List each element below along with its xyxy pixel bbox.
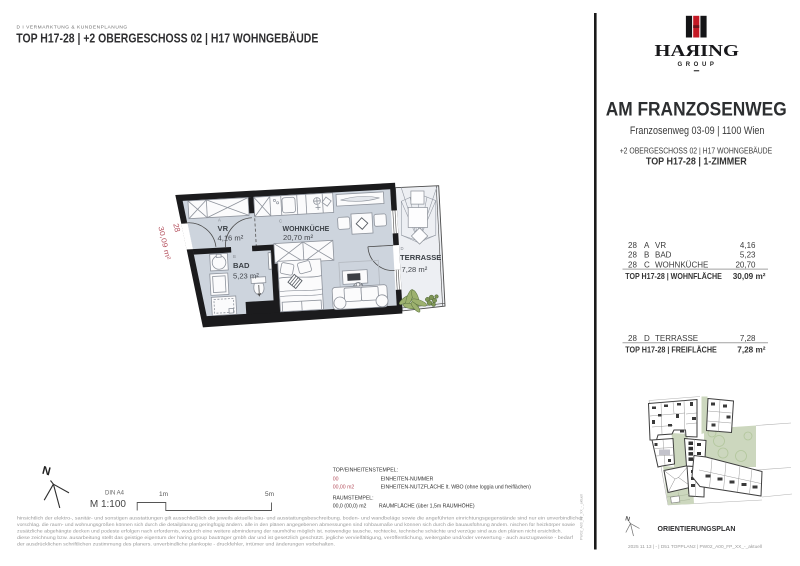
svg-text:28: 28 xyxy=(628,241,637,250)
svg-text:20,70: 20,70 xyxy=(735,260,756,269)
svg-text:M 1:100: M 1:100 xyxy=(90,499,127,510)
svg-text:RAUMFLÄCHE (über 1,5m RAUMHÖHE: RAUMFLÄCHE (über 1,5m RAUMHÖHE) xyxy=(379,503,475,510)
svg-text:TOP H17-28 | +2 OBERGESCHOSS 0: TOP H17-28 | +2 OBERGESCHOSS 02 | H17 WO… xyxy=(16,31,318,46)
svg-text:7,28 m²: 7,28 m² xyxy=(737,345,765,354)
svg-text:TOP H17-28 | WOHNFLÄCHE: TOP H17-28 | WOHNFLÄCHE xyxy=(625,271,722,281)
svg-text:1m: 1m xyxy=(159,491,168,498)
svg-text:BAD: BAD xyxy=(655,251,672,260)
svg-text:VR: VR xyxy=(218,224,229,233)
svg-text:RAUMSTEMPEL:: RAUMSTEMPEL: xyxy=(333,495,374,501)
svg-text:TERRASSE: TERRASSE xyxy=(655,334,698,343)
svg-text:TOP/EINHEITENSTEMPEL:: TOP/EINHEITENSTEMPEL: xyxy=(333,468,398,474)
svg-text:20,70 m²: 20,70 m² xyxy=(283,233,313,242)
svg-text:5,23: 5,23 xyxy=(740,251,756,260)
svg-text:TOP H17-28 | FREIFLÄCHE: TOP H17-28 | FREIFLÄCHE xyxy=(625,344,717,354)
svg-text:B: B xyxy=(233,254,236,259)
svg-text:GROUP: GROUP xyxy=(677,62,717,68)
svg-text:7,28 m²: 7,28 m² xyxy=(402,265,428,274)
svg-text:00: 00 xyxy=(333,477,339,483)
svg-text:+2 OBERGESCHOSS 02 | H17 WOHNG: +2 OBERGESCHOSS 02 | H17 WOHNGEBÄUDE xyxy=(620,147,773,156)
svg-text:der ausdrücklichen schriftlich: der ausdrücklichen schriftlichen zustimm… xyxy=(17,542,335,547)
svg-text:VR: VR xyxy=(655,241,666,250)
svg-text:4,16 m²: 4,16 m² xyxy=(218,233,244,242)
svg-text:5m: 5m xyxy=(265,491,274,498)
svg-text:30,09 m²: 30,09 m² xyxy=(733,272,766,281)
svg-text:7,28: 7,28 xyxy=(740,334,756,343)
svg-text:C: C xyxy=(644,260,650,269)
svg-text:PW02_A00_FP_XX_-_aktuell: PW02_A00_FP_XX_-_aktuell xyxy=(580,494,584,540)
svg-text:A: A xyxy=(218,217,221,222)
svg-text:BAD: BAD xyxy=(233,261,250,270)
svg-text:zusätzliche abgehängte decken: zusätzliche abgehängte decken und podest… xyxy=(17,529,562,534)
svg-text:diese zeichnung bzw. ausarbeit: diese zeichnung bzw. ausarbeitung stellt… xyxy=(17,535,574,540)
svg-text:TOP H17-28 | 1-ZIMMER: TOP H17-28 | 1-ZIMMER xyxy=(646,156,747,168)
svg-text:4,16: 4,16 xyxy=(740,241,756,250)
svg-text:EINHEITEN-NUMMER: EINHEITEN-NUMMER xyxy=(381,477,434,483)
svg-text:A: A xyxy=(644,241,650,250)
svg-text:WOHNKÜCHE: WOHNKÜCHE xyxy=(655,260,708,269)
svg-text:EINHEITEN-NUTZFLÄCHE lt. WBO (: EINHEITEN-NUTZFLÄCHE lt. WBO (ohne loggi… xyxy=(381,483,531,490)
svg-text:AM FRANZOSENWEG: AM FRANZOSENWEG xyxy=(606,100,787,121)
svg-text:ORIENTIERUNGSPLAN: ORIENTIERUNGSPLAN xyxy=(658,524,736,533)
svg-text:28: 28 xyxy=(628,260,637,269)
svg-text:5,23 m²: 5,23 m² xyxy=(233,272,259,281)
svg-text:D: D xyxy=(644,334,650,343)
svg-text:00,00 m2: 00,00 m2 xyxy=(333,484,355,490)
svg-text:28: 28 xyxy=(628,251,637,260)
svg-text:00,0 (00,0) m2: 00,0 (00,0) m2 xyxy=(333,504,367,510)
svg-text:DIN A4: DIN A4 xyxy=(105,491,125,497)
svg-text:28: 28 xyxy=(628,334,637,343)
svg-text:TERRASSE: TERRASSE xyxy=(400,253,441,262)
svg-text:vorschlag. die raum- und wohnu: vorschlag. die raum- und wohnungsgrößen … xyxy=(17,522,576,527)
svg-text:B: B xyxy=(644,251,649,260)
svg-text:WOHNKÜCHE: WOHNKÜCHE xyxy=(283,224,330,233)
svg-text:hinsichtlich der elektro-, san: hinsichtlich der elektro-, sanitär- und … xyxy=(17,516,584,521)
svg-text:2025 11 13 | - | D51 TOPPLAN2: 2025 11 13 | - | D51 TOPPLAN2 | PW02_A00… xyxy=(628,544,762,549)
svg-text:Franzosenweg 03-09 | 1100 Wien: Franzosenweg 03-09 | 1100 Wien xyxy=(630,125,765,137)
svg-text:HAЯING: HAЯING xyxy=(655,41,740,60)
svg-text:C: C xyxy=(279,219,282,224)
svg-text:D: D xyxy=(401,246,404,251)
